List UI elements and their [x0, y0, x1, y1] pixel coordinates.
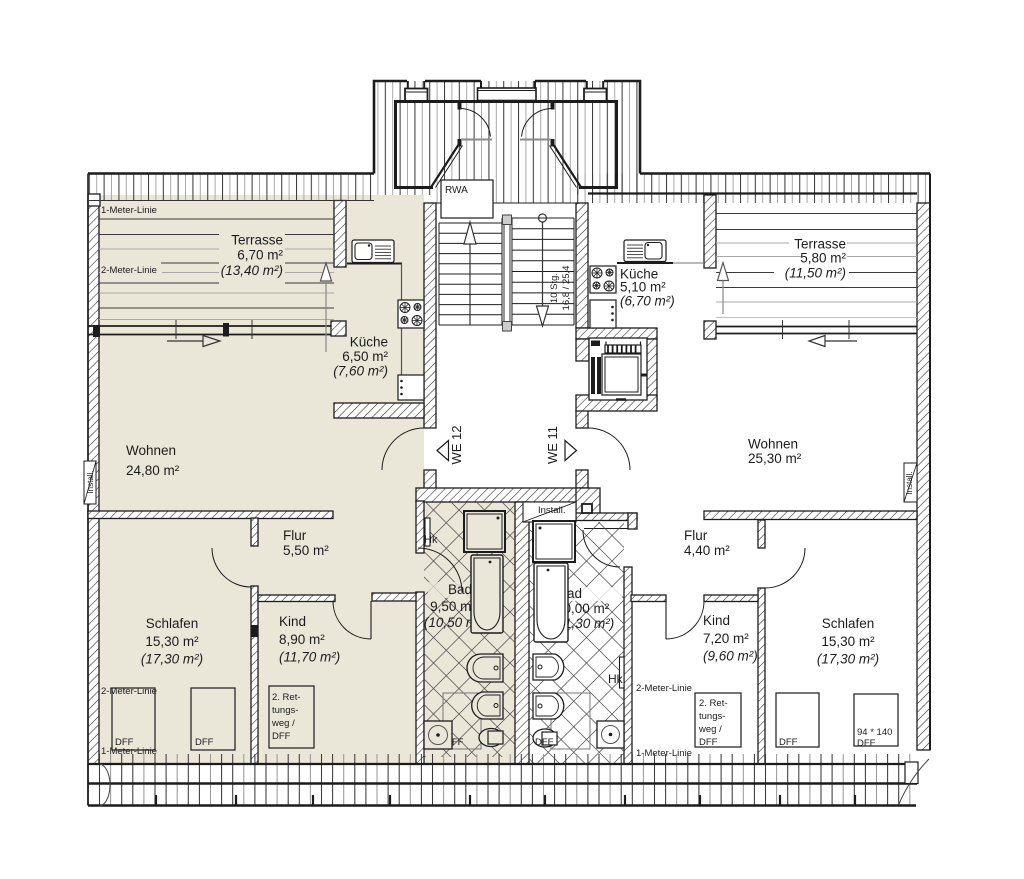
svg-text:DFF: DFF: [115, 737, 134, 748]
svg-text:Wohnen: Wohnen: [126, 443, 176, 458]
svg-text:Bad: Bad: [448, 582, 472, 597]
svg-text:DFF: DFF: [857, 738, 876, 749]
svg-text:Flur: Flur: [684, 528, 708, 543]
svg-text:4,40 m²: 4,40 m²: [684, 543, 730, 558]
svg-text:weg /: weg /: [698, 724, 722, 735]
svg-text:Flur: Flur: [283, 528, 307, 543]
svg-text:DFF: DFF: [272, 731, 291, 742]
svg-text:(11,50 m²): (11,50 m²): [785, 266, 846, 281]
svg-text:RWA: RWA: [445, 185, 468, 196]
svg-text:Hk: Hk: [424, 534, 438, 546]
svg-text:1-Meter-Linie: 1-Meter-Linie: [101, 205, 157, 216]
svg-text:6,50 m²: 6,50 m²: [342, 349, 388, 364]
svg-text:1-Meter-Linie: 1-Meter-Linie: [636, 748, 692, 759]
svg-text:tungs-: tungs-: [699, 711, 725, 722]
svg-text:DFF: DFF: [699, 737, 718, 748]
svg-text:7,20 m²: 7,20 m²: [703, 631, 749, 646]
svg-text:tungs-: tungs-: [272, 705, 298, 716]
svg-text:Terrasse: Terrasse: [231, 233, 283, 248]
svg-text:DFF: DFF: [779, 737, 798, 748]
svg-text:15,30 m²: 15,30 m²: [821, 634, 875, 649]
svg-text:Schlafen: Schlafen: [822, 616, 875, 631]
svg-text:16,8 / 25,4: 16,8 / 25,4: [561, 266, 572, 311]
svg-text:WE 12: WE 12: [449, 425, 464, 464]
svg-text:(7,60 m²): (7,60 m²): [333, 364, 388, 379]
svg-text:Terrasse: Terrasse: [794, 237, 846, 252]
svg-text:25,30 m²: 25,30 m²: [748, 451, 802, 466]
svg-text:2-Meter-Linie: 2-Meter-Linie: [636, 683, 692, 694]
svg-text:Kind: Kind: [279, 614, 306, 629]
svg-text:Kind: Kind: [703, 613, 730, 628]
svg-text:94 * 140: 94 * 140: [857, 727, 892, 738]
svg-text:DFF: DFF: [535, 737, 554, 748]
svg-text:2. Ret-: 2. Ret-: [699, 698, 728, 709]
svg-text:DFF: DFF: [195, 737, 214, 748]
svg-text:weg /: weg /: [271, 718, 295, 729]
svg-text:9,50 m²: 9,50 m²: [430, 599, 476, 614]
svg-text:Install.: Install.: [905, 471, 914, 494]
svg-text:8,90 m²: 8,90 m²: [279, 632, 325, 647]
svg-text:(13,40 m²): (13,40 m²): [221, 263, 283, 278]
svg-text:Küche: Küche: [350, 335, 388, 350]
svg-text:Hk: Hk: [608, 672, 624, 686]
svg-text:Schlafen: Schlafen: [146, 616, 199, 631]
svg-text:Install.: Install.: [538, 505, 565, 516]
svg-text:6,70 m²: 6,70 m²: [237, 248, 283, 263]
svg-text:24,80 m²: 24,80 m²: [126, 463, 180, 478]
svg-text:(6,70 m²): (6,70 m²): [620, 294, 675, 309]
svg-text:2-Meter-Linie: 2-Meter-Linie: [101, 265, 157, 276]
svg-text:Install.: Install.: [86, 470, 95, 493]
svg-text:10 Stg.: 10 Stg.: [549, 273, 560, 303]
svg-text:2. Ret-: 2. Ret-: [272, 692, 301, 703]
svg-text:(17,30 m²): (17,30 m²): [817, 652, 879, 667]
svg-text:(17,30 m²): (17,30 m²): [141, 652, 203, 667]
svg-text:(9,60 m²): (9,60 m²): [703, 649, 758, 664]
svg-text:5,80 m²: 5,80 m²: [800, 251, 846, 266]
svg-text:5,10 m²: 5,10 m²: [620, 280, 666, 295]
svg-text:Wohnen: Wohnen: [748, 437, 798, 452]
svg-text:WE 11: WE 11: [545, 426, 560, 464]
svg-text:15,30 m²: 15,30 m²: [145, 634, 199, 649]
svg-text:(11,70 m²): (11,70 m²): [279, 650, 340, 665]
svg-text:5,50 m²: 5,50 m²: [283, 543, 329, 558]
